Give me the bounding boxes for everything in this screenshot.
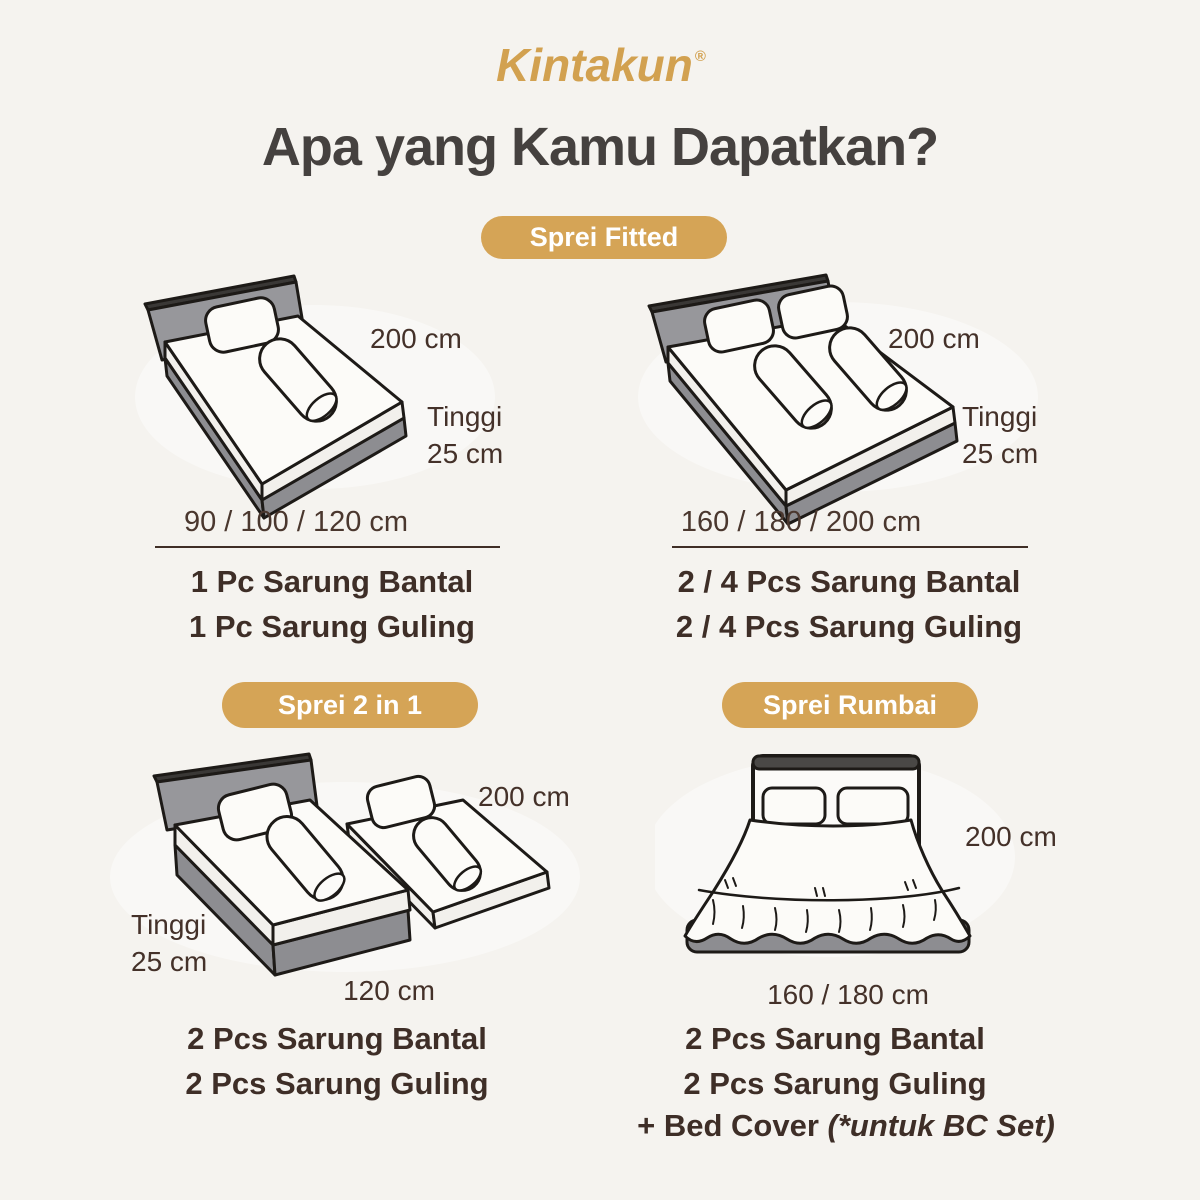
badge-sprei-rumbai: Sprei Rumbai (722, 682, 978, 728)
badge-sprei-fitted: Sprei Fitted (481, 216, 727, 259)
badge-sprei-fitted-label: Sprei Fitted (530, 222, 679, 253)
dim-height-value: 25 cm (962, 435, 1038, 472)
included-item: 2 Pcs Sarung Bantal (685, 1021, 985, 1057)
included-item-bedcover: + Bed Cover (*untuk BC Set) (637, 1108, 1055, 1144)
dim-width-fitted-right: 200 cm (888, 320, 980, 357)
included-item: 1 Pc Sarung Bantal (191, 564, 474, 600)
dim-height-fitted-right: Tinggi 25 cm (962, 398, 1038, 472)
included-item: 2 / 4 Pcs Sarung Bantal (678, 564, 1021, 600)
dim-height-fitted-left: Tinggi 25 cm (427, 398, 503, 472)
badge-sprei-rumbai-label: Sprei Rumbai (763, 690, 937, 721)
badge-sprei-2in1-label: Sprei 2 in 1 (278, 690, 422, 721)
dim-height-label: Tinggi (427, 398, 503, 435)
bed-rumbai-illustration (655, 742, 1075, 982)
dim-height-label: Tinggi (962, 398, 1038, 435)
included-item: 2 Pcs Sarung Bantal (187, 1021, 487, 1057)
dim-width-2in1: 200 cm (478, 778, 570, 815)
bedcover-prefix: + Bed Cover (637, 1108, 827, 1143)
registered-mark: ® (695, 48, 706, 65)
badge-sprei-2in1: Sprei 2 in 1 (222, 682, 478, 728)
included-item: 1 Pc Sarung Guling (189, 609, 475, 645)
dim-width-fitted-left: 200 cm (370, 320, 462, 357)
kintakun-logo: Kintakun® (496, 38, 704, 92)
bedcover-note: (*untuk BC Set) (828, 1108, 1055, 1143)
included-item: 2 Pcs Sarung Guling (185, 1066, 488, 1102)
kintakun-logo-text: Kintakun (496, 39, 693, 91)
included-item: 2 Pcs Sarung Guling (683, 1066, 986, 1102)
infographic-canvas: Kintakun® Apa yang Kamu Dapatkan? Sprei … (0, 0, 1200, 1200)
size-divider-right (672, 546, 1028, 548)
dim-bed-width-rumbai: 160 / 180 cm (767, 976, 929, 1013)
sizes-fitted-left: 90 / 100 / 120 cm (184, 506, 408, 539)
dim-bed-width-2in1: 120 cm (343, 972, 435, 1009)
sizes-fitted-right: 160 / 180 / 200 cm (681, 506, 921, 539)
page-title: Apa yang Kamu Dapatkan? (262, 116, 938, 178)
size-divider-left (155, 546, 500, 548)
dim-height-value: 25 cm (131, 943, 207, 980)
dim-height-label: Tinggi (131, 906, 207, 943)
dim-height-value: 25 cm (427, 435, 503, 472)
dim-height-2in1: Tinggi 25 cm (131, 906, 207, 980)
dim-width-rumbai: 200 cm (965, 818, 1057, 855)
included-item: 2 / 4 Pcs Sarung Guling (676, 609, 1022, 645)
